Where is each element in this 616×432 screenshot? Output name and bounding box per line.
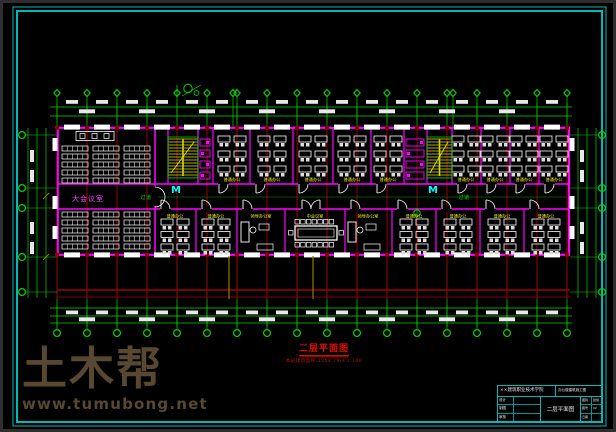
workstation [202,244,214,250]
cad-viewport[interactable]: 大会议室过道过道领导办公室中会议室领导办公室普通办公普通办公普通办公普通办公普通… [0,0,616,432]
dim-text [366,100,378,104]
side-value [592,414,601,421]
chair [511,239,515,243]
workstation [444,244,456,250]
workstation [218,151,230,157]
axis-bubble-top [144,90,150,97]
axis-bubble-top [324,90,330,97]
field-label: 设计 [498,397,514,404]
wc-fixture-dot [420,141,423,144]
workstation [374,166,386,172]
workstation [400,244,412,250]
pilaster [85,126,89,130]
window-sill [64,125,80,130]
dim-text [439,109,455,113]
workstation [218,136,230,142]
window-sill [53,226,58,239]
chair [451,251,455,255]
seat-row [124,146,150,151]
chair [402,251,406,255]
dim-text [199,109,215,113]
seat-row [93,154,119,159]
door-opening [201,207,212,212]
dim-text [79,109,95,113]
chair [558,158,562,162]
field-drafter: 制图 [498,405,540,413]
chair [265,173,269,177]
organization-name: ××建筑职业技术学院 [498,386,556,396]
chair [555,251,559,255]
window-sill [274,252,290,257]
door-opening [154,186,157,206]
seat-row [93,236,119,241]
plan-caption: 二层平面图 本层建筑面积:1268.79㎡ 1:100 [276,336,372,364]
pilaster [505,126,509,130]
dim-text [306,311,318,315]
podium-seat [92,134,97,139]
dim-text [259,109,275,113]
chair [563,158,567,162]
chair [209,226,213,230]
chair [504,143,508,147]
chair [446,251,450,255]
axis-bubble-top [414,90,420,97]
workstation [161,219,173,225]
chair [558,143,562,147]
chair [209,251,213,255]
dim-text [66,311,78,315]
pilaster [265,126,269,130]
pilaster [295,126,299,130]
axis-bubble-bottom [204,330,211,337]
chair [179,226,183,230]
chair [168,239,172,243]
workstation [234,166,246,172]
watermark-site: www.tumubong.net [22,395,208,413]
chair [504,158,508,162]
chair [534,239,538,243]
chair [418,251,422,255]
workstation [390,166,402,172]
chair [163,239,167,243]
chair [322,158,326,162]
chair [376,143,380,147]
window-sill [570,226,575,239]
dim-text [379,109,395,113]
chair [236,143,240,147]
chair [306,173,310,177]
workstation [481,151,493,157]
workstation [354,136,366,142]
chair [470,173,474,177]
axis-bubble-left [19,132,26,139]
office-label: 普通办公 [538,213,556,220]
dim-text [319,317,335,321]
chair [356,158,360,162]
window-sill [514,252,530,257]
workstation [540,166,552,172]
chair [483,143,487,147]
dim-text [216,311,228,315]
side-label: 图号 [581,405,592,412]
pilaster [355,253,359,257]
chair [329,220,334,225]
workstation [161,244,173,250]
datum-circle [184,84,192,92]
chair [289,231,294,236]
sofa [364,244,380,250]
window-sill [53,138,58,151]
seat-row [124,154,150,159]
workstation [548,232,560,238]
workstation [556,166,568,172]
chair [225,251,229,255]
seat-row [62,146,88,151]
chair [495,239,499,243]
dim-text [580,242,584,254]
pilaster [565,126,569,130]
chair [459,143,463,147]
workstation [218,244,230,250]
dim-text [30,242,34,254]
workstation [548,219,560,225]
chair [317,143,321,147]
pilaster [175,253,179,257]
workstation [315,136,327,142]
exec-office-label: 领导办公室 [251,213,272,220]
seat-row [62,162,88,167]
wc-fixture-dot [201,152,204,155]
chair [533,158,537,162]
chair [322,173,326,177]
chair [547,158,551,162]
dim-text [486,100,498,104]
window-sill [94,125,110,130]
chair [402,226,406,230]
chair [499,158,503,162]
field-label: 审核 [498,414,514,421]
chair [281,158,285,162]
chair [407,239,411,243]
axis-bubble-bottom [84,330,91,337]
dim-text [546,100,558,104]
chair [490,251,494,255]
office-label: 普通办公 [494,213,512,220]
window-sill [484,125,500,130]
workstation [468,151,480,157]
chair [184,239,188,243]
chair [179,239,183,243]
door-opening [515,182,526,187]
axis-bubble-bottom [564,330,571,337]
side-number: 图号 02 [581,405,601,413]
chair [356,173,360,177]
workstation [510,166,522,172]
door-opening [397,207,408,212]
workstation [315,151,327,157]
dim-text [366,311,378,315]
workstation [177,219,189,225]
axis-bubble-bottom [444,330,451,337]
workstation [416,232,428,238]
workstation [234,136,246,142]
chair [209,239,213,243]
workstation [488,244,500,250]
chair [504,173,508,177]
seat-row [93,146,119,151]
chair [345,143,349,147]
axis-bubble-left [19,289,26,296]
workstation [218,232,230,238]
dim-text [276,311,288,315]
chair [225,143,229,147]
exec-office-label: 领导办公室 [358,213,379,220]
workstation [177,232,189,238]
axis-bubble-bottom [534,330,541,337]
chair [276,173,280,177]
chair [483,173,487,177]
hall-label: 大会议室 [72,194,104,203]
chair [454,143,458,147]
seat-row [124,212,150,217]
workstation [338,136,350,142]
chair [220,158,224,162]
pilaster [55,126,59,130]
pilaster [475,126,479,130]
workstation [468,136,480,142]
chair [392,143,396,147]
chair [301,143,305,147]
exec-desk [348,222,356,242]
office-label: 普通办公 [406,213,424,220]
workstation [274,166,286,172]
pilaster [55,253,59,257]
chair [204,226,208,230]
corridor-label: 过道 [140,194,151,201]
elevator-mark: M [428,185,438,196]
workstation [161,232,173,238]
dim-text [156,100,168,104]
workstation [460,232,472,238]
dim-text [246,311,258,315]
chair [475,158,479,162]
chair [329,243,334,248]
wc-fixture-dot [206,163,209,166]
chair [312,220,317,225]
workstation [532,219,544,225]
side-table [366,224,376,230]
chair [490,239,494,243]
workstation [444,232,456,238]
door-opening [457,182,468,187]
chair [306,243,311,248]
pilaster [325,253,329,257]
axis-bubble-top [384,90,390,97]
chair [317,173,321,177]
axis-bubble-top [54,90,60,97]
wc-fixture-dot [206,141,209,144]
seat-row [93,228,119,233]
title-block-header: ××建筑职业技术学院 办公楼建筑施工图 [498,386,601,397]
door-opening [529,207,540,212]
chair [555,226,559,230]
chair [499,173,503,177]
dim-text [379,317,395,321]
axis-bubble-bottom [474,330,481,337]
pilaster [415,126,419,130]
chair [301,173,305,177]
chair [392,158,396,162]
workstation [452,166,464,172]
pilaster [475,253,479,257]
chair [539,239,543,243]
axis-bubble-bottom [264,330,271,337]
workstation [354,166,366,172]
office-label: 普通办公 [487,176,505,183]
seat-row [93,162,119,167]
chair [528,158,532,162]
chair [495,251,499,255]
chair [241,173,245,177]
chair [517,143,521,147]
seat-row [124,162,150,167]
axis-bubble-bottom [384,330,391,337]
workstation [416,244,428,250]
axis-bubble-bottom [414,330,421,337]
drawing-name: 二层平面图 [541,397,581,421]
window-sill [94,252,110,257]
chair [517,158,521,162]
dim-text [486,311,498,315]
window-sill [64,252,80,257]
dim-text [156,311,168,315]
window-sill [184,125,200,130]
chair [483,158,487,162]
dim-text [336,311,348,315]
dim-text [246,100,258,104]
chair [306,220,311,225]
workstation [504,232,516,238]
seat-row [62,244,88,249]
window-sill [334,252,350,257]
chair [454,158,458,162]
chair [563,173,567,177]
chair [488,173,492,177]
axis-bubble-bottom [174,330,181,337]
chair [563,143,567,147]
window-sill [274,125,290,130]
workstation [338,151,350,157]
workstation [481,136,493,142]
window-sill [570,138,575,151]
chair [397,158,401,162]
dim-text [516,311,528,315]
axis-bubble-top [504,90,510,97]
chair [220,251,224,255]
workstation [299,136,311,142]
chair [558,173,562,177]
chair [345,158,349,162]
side-date: 日期 [581,414,601,421]
workstation [274,151,286,157]
title-block: ××建筑职业技术学院 办公楼建筑施工图 设计 制图 审核 二层平面图 [497,385,602,422]
dim-text [516,100,528,104]
axis-bubble-bottom [54,330,61,337]
office-label: 普通办公 [344,176,362,183]
workstation [526,151,538,157]
seat-row [62,178,88,183]
field-checker: 审核 [498,414,540,421]
dim-text [499,317,515,321]
chair [276,158,280,162]
chair [318,220,323,225]
workstation [532,244,544,250]
side-category: 图别 建施 [581,397,601,405]
door-opening [255,182,266,187]
chair [376,158,380,162]
window-sill [154,252,170,257]
seat-row [124,220,150,225]
side-table [259,224,269,230]
workstation [400,232,412,238]
workstation [299,151,311,157]
workstation [202,232,214,238]
window-sill [364,252,380,257]
pilaster [175,126,179,130]
podium-seat [104,134,109,139]
chair [470,143,474,147]
dim-text [426,100,438,104]
dim-text [396,100,408,104]
side-label: 日期 [581,414,592,421]
chair [179,251,183,255]
office-label: 普通办公 [167,213,185,220]
office-label: 普通办公 [516,176,534,183]
workstation [374,151,386,157]
title-block-body: 设计 制图 审核 二层平面图 图别 建施 图号 [498,397,601,421]
office-label: 普通办公 [208,213,226,220]
dim-text [199,317,215,321]
chair [236,173,240,177]
window-sill [304,252,320,257]
dim-text [276,100,288,104]
chair [381,173,385,177]
workstation [504,244,516,250]
chair [512,158,516,162]
chair [495,226,499,230]
axis-bubble-top [84,90,90,97]
chair [462,239,466,243]
pilaster [235,253,239,257]
pilaster [235,126,239,130]
seat-row [62,154,88,159]
workstation [540,151,552,157]
chair [488,143,492,147]
dim-text [426,311,438,315]
chair [381,158,385,162]
axis-bubble-top [294,90,300,97]
window-sill [124,252,140,257]
workstation [400,219,412,225]
workstation [556,151,568,157]
chair [301,220,306,225]
field-label: 制图 [498,405,514,412]
workstation [488,232,500,238]
chair [265,143,269,147]
chair [539,251,543,255]
seat-row [62,212,88,217]
workstation [234,151,246,157]
